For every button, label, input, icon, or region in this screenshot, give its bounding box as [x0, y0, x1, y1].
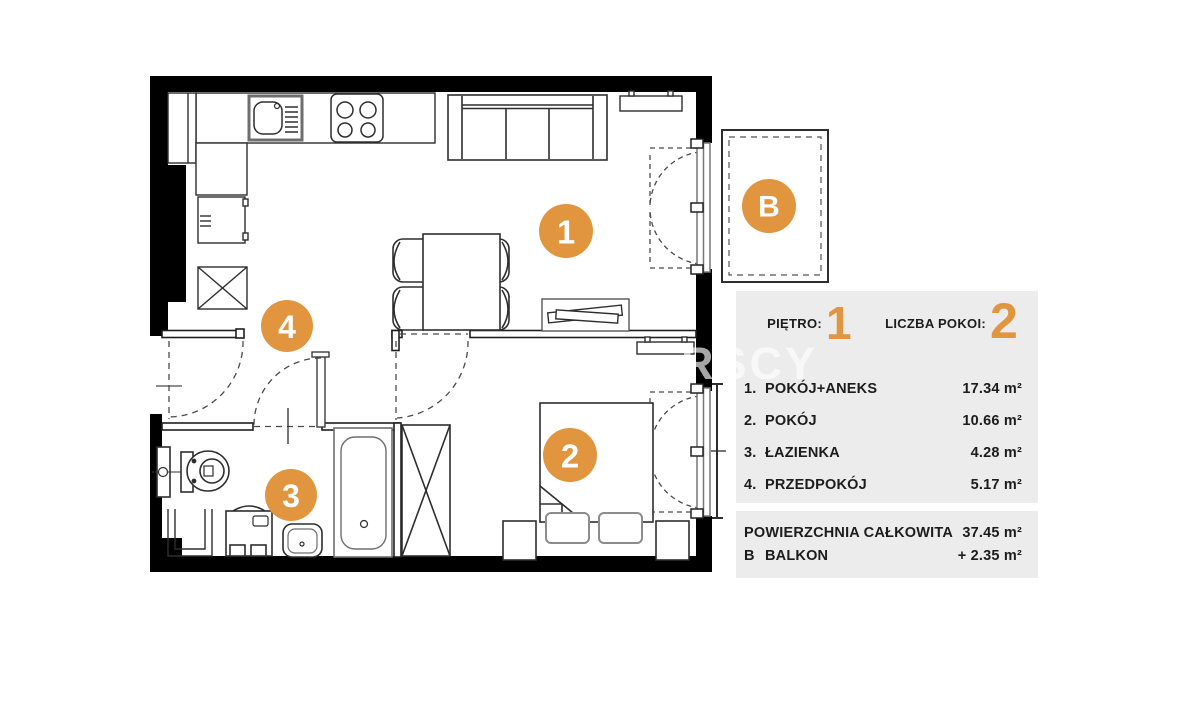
toilet — [152, 447, 229, 497]
room-area: 5.17 m² — [971, 477, 1022, 493]
kitchen-stove — [331, 94, 383, 142]
balcony-letter: B — [758, 191, 780, 224]
floor-value: 1 — [826, 300, 852, 346]
rooms-count-value: 2 — [990, 296, 1018, 346]
room-area: 10.66 m² — [962, 413, 1022, 429]
bathtub — [334, 428, 392, 557]
room-2-badge: 2 — [543, 428, 597, 482]
floor-label: PIĘTRO: — [736, 316, 822, 331]
room-row-2: 2. POKÓJ 10.66 m² — [736, 405, 1038, 437]
room-area: 4.28 m² — [971, 445, 1022, 461]
room-3-number: 3 — [282, 478, 300, 514]
room-name: ŁAZIENKA — [765, 445, 971, 461]
total-row: POWIERZCHNIA CAŁKOWITA 37.45 m² — [744, 525, 1022, 541]
room-index: 4. — [744, 477, 765, 493]
room-name: POKÓJ — [765, 413, 962, 429]
wall-radiators — [620, 91, 694, 354]
total-area: 37.45 m² — [962, 525, 1022, 541]
room-4-badge: 4 — [261, 300, 313, 352]
bathroom-sink — [283, 524, 322, 557]
room-name: PRZEDPOKÓJ — [765, 477, 971, 493]
room-row-1: 1. POKÓJ+ANEKS 17.34 m² — [736, 373, 1038, 405]
info-panel-main: PIĘTRO: 1 LICZBA POKOI: 2 1. POKÓJ+ANEKS… — [736, 291, 1038, 503]
bed — [503, 403, 689, 560]
room-area: 17.34 m² — [962, 381, 1022, 397]
balcony-row: B BALKON + 2.35 m² — [744, 548, 1022, 564]
room-index: 3. — [744, 445, 765, 461]
balcony-badge: B — [742, 179, 796, 233]
room-2-number: 2 — [561, 438, 579, 475]
sofa — [448, 95, 607, 160]
room-row-4: 4. PRZEDPOKÓJ 5.17 m² — [736, 469, 1038, 501]
room-index: 1. — [744, 381, 765, 397]
room-list: 1. POKÓJ+ANEKS 17.34 m² 2. POKÓJ 10.66 m… — [736, 373, 1038, 501]
room-1-number: 1 — [557, 214, 575, 251]
shower-cabinet — [168, 509, 212, 556]
room-index: 2. — [744, 413, 765, 429]
rooms-count-label: LICZBA POKOI: — [854, 316, 986, 331]
dining-set — [393, 234, 509, 330]
room-name: POKÓJ+ANEKS — [765, 381, 962, 397]
info-panel-totals: POWIERZCHNIA CAŁKOWITA 37.45 m² B BALKON… — [736, 511, 1038, 578]
tv-stand — [542, 299, 629, 331]
balcony-index: B — [744, 548, 765, 564]
washing-machine — [226, 506, 272, 556]
room-3-badge: 3 — [265, 469, 317, 521]
room-4-number: 4 — [278, 309, 296, 345]
french-railing — [711, 384, 726, 518]
room-row-3: 3. ŁAZIENKA 4.28 m² — [736, 437, 1038, 469]
balcony-label: BALKON — [765, 548, 958, 564]
floorplan-page: 1 2 3 4 B RSCY PIĘTRO: 1 LICZBA POKOI: 2… — [0, 0, 1191, 722]
wardrobe — [402, 425, 450, 556]
kitchen-sink — [249, 96, 302, 140]
total-label: POWIERZCHNIA CAŁKOWITA — [744, 525, 962, 541]
room-1-badge: 1 — [539, 204, 593, 258]
balcony-area: + 2.35 m² — [958, 548, 1022, 564]
